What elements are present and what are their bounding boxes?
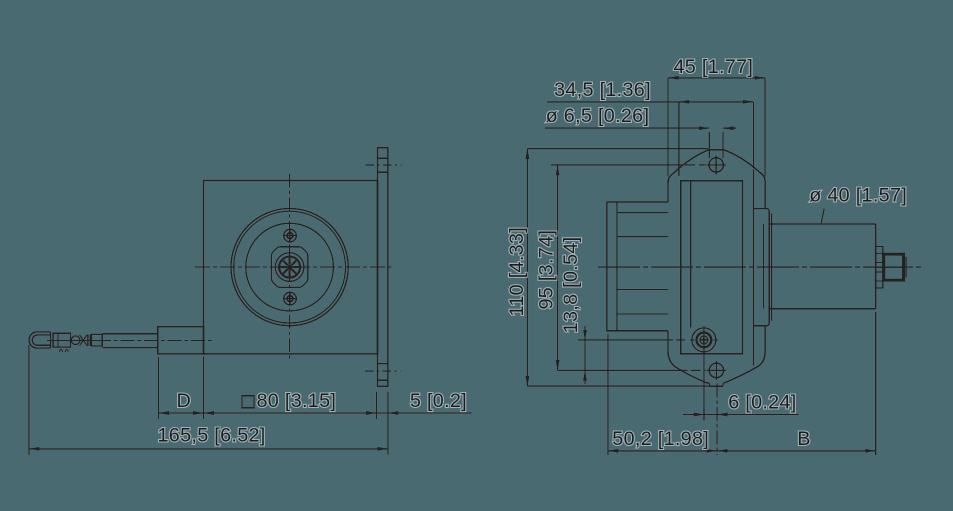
svg-text:80 [3.15]: 80 [3.15] [257,390,337,412]
svg-text:110 [4.33]: 110 [4.33] [506,227,528,317]
svg-text:5 [0.2]: 5 [0.2] [410,390,467,412]
svg-text:ø 40 [1.57]: ø 40 [1.57] [809,185,907,207]
svg-text:50,2 [1.98]: 50,2 [1.98] [612,428,709,450]
svg-text:D: D [177,390,192,412]
svg-text:B: B [797,428,811,450]
svg-text:ø 6,5 [0.26]: ø 6,5 [0.26] [546,105,650,127]
svg-text:34,5 [1.36]: 34,5 [1.36] [554,79,651,101]
svg-text:13,8 [0.54]: 13,8 [0.54] [560,237,582,334]
svg-text:45 [1.77]: 45 [1.77] [674,56,754,78]
svg-text:165,5 [6.52]: 165,5 [6.52] [158,424,266,446]
svg-text:6 [0.24]: 6 [0.24] [728,391,796,413]
svg-text:95 [3.74]: 95 [3.74] [536,230,558,310]
